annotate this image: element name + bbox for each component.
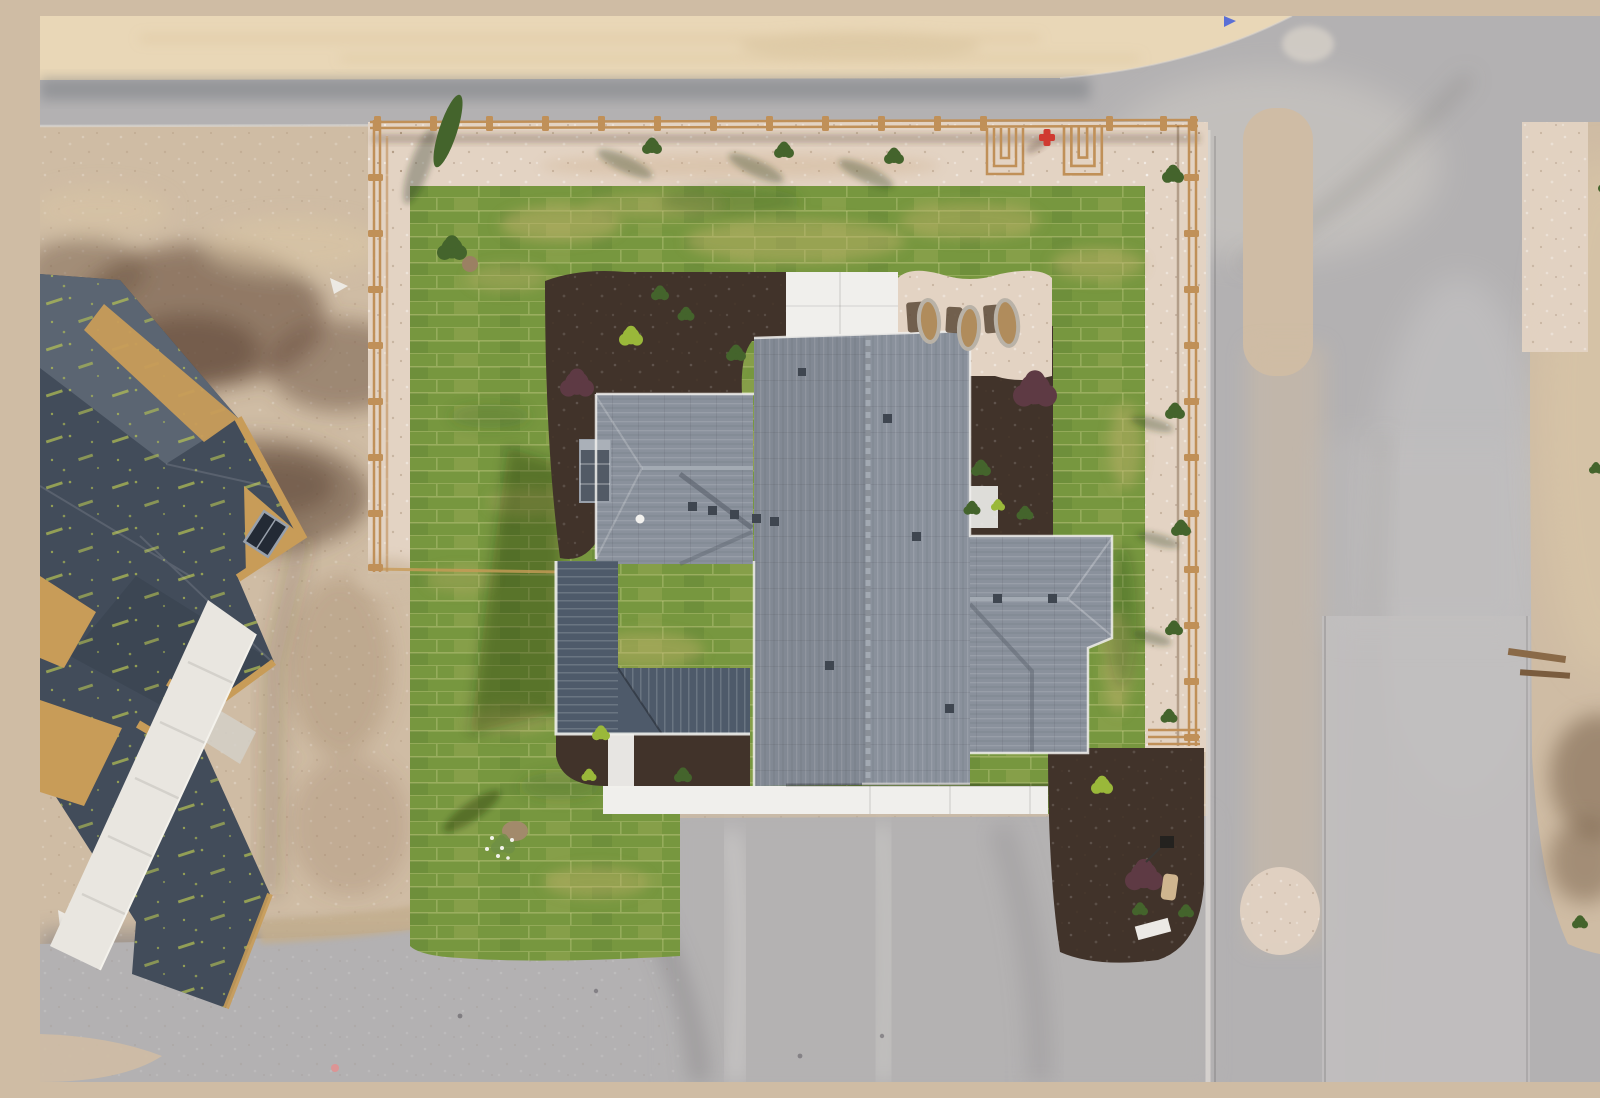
- concrete-lane: [1322, 436, 1530, 1082]
- paint-dot: [331, 1064, 339, 1072]
- front-apron-walkway: [603, 786, 1048, 814]
- aerial-photo: Aerial drone view straight down on a new…: [40, 16, 1600, 1082]
- dirt-ring: [462, 256, 478, 272]
- window-well-cover: [918, 299, 941, 342]
- fence-shadow: [372, 134, 1200, 143]
- window-well-cover: [958, 307, 980, 350]
- pavement-smudge: [1282, 26, 1334, 62]
- road-median-dirt: [1240, 108, 1324, 955]
- sand-shoulder-top: [40, 16, 1292, 80]
- left-wing-roof: [596, 394, 753, 564]
- porch-walk-stub: [608, 728, 634, 788]
- pipe-vent: [636, 515, 645, 524]
- aerial-photo-canvas: [40, 16, 1600, 1082]
